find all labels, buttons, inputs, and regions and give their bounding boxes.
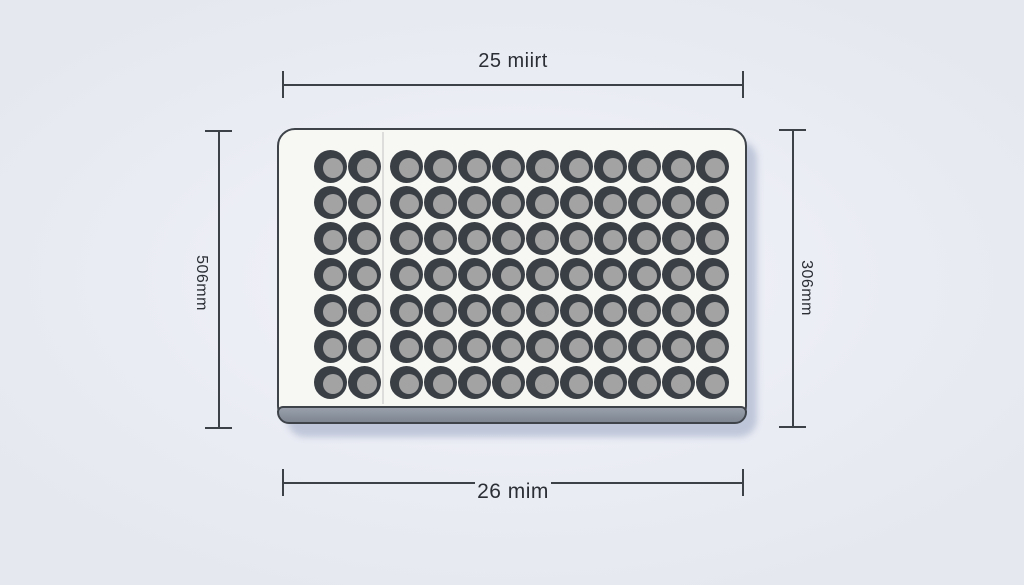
well-cavity — [467, 230, 487, 250]
well-cavity — [357, 374, 377, 394]
well — [492, 186, 525, 219]
well — [314, 366, 347, 399]
well-cavity — [357, 158, 377, 178]
well — [696, 258, 729, 291]
well-cavity — [603, 230, 623, 250]
well — [390, 258, 423, 291]
well — [526, 366, 559, 399]
well-cavity — [569, 230, 589, 250]
well-cavity — [569, 338, 589, 358]
well-cavity — [467, 302, 487, 322]
well — [594, 366, 627, 399]
well-cavity — [705, 302, 725, 322]
well-cavity — [671, 338, 691, 358]
well — [526, 330, 559, 363]
well-cavity — [569, 374, 589, 394]
well-cavity — [671, 194, 691, 214]
well-cavity — [705, 374, 725, 394]
well — [594, 294, 627, 327]
dimension-tick-left-top — [205, 130, 232, 132]
well-cavity — [357, 194, 377, 214]
well — [492, 330, 525, 363]
well-cavity — [705, 158, 725, 178]
well — [696, 186, 729, 219]
dimension-tick-left-bottom — [205, 427, 232, 429]
well-cavity — [705, 338, 725, 358]
well — [628, 186, 661, 219]
well-cavity — [467, 374, 487, 394]
well-cavity — [637, 194, 657, 214]
well-cavity — [603, 302, 623, 322]
well-cavity — [501, 374, 521, 394]
well — [662, 186, 695, 219]
well-cavity — [433, 338, 453, 358]
plate-side-face — [277, 406, 747, 424]
dimension-tick-right-bottom — [779, 426, 806, 428]
dimension-line-left — [218, 131, 220, 428]
well-row — [314, 330, 729, 363]
well-cavity — [323, 158, 343, 178]
well-cavity — [705, 230, 725, 250]
well-cavity — [569, 266, 589, 286]
well — [390, 366, 423, 399]
well — [696, 294, 729, 327]
well-cavity — [637, 266, 657, 286]
well — [492, 222, 525, 255]
diagram-canvas: 25 miirt 506mm 306mm 26 mim — [0, 0, 1024, 585]
well — [424, 258, 457, 291]
well — [526, 258, 559, 291]
well — [594, 330, 627, 363]
well-cavity — [467, 158, 487, 178]
well — [458, 222, 491, 255]
well — [314, 330, 347, 363]
well — [458, 258, 491, 291]
well — [560, 150, 593, 183]
well — [560, 186, 593, 219]
dimension-label-bottom: 26 mim — [283, 480, 743, 504]
well-cavity — [399, 338, 419, 358]
well — [662, 258, 695, 291]
well-cavity — [433, 158, 453, 178]
well-cavity — [501, 266, 521, 286]
well-cavity — [535, 158, 555, 178]
well — [628, 258, 661, 291]
well-cavity — [323, 374, 343, 394]
well-row — [314, 150, 729, 183]
well — [594, 222, 627, 255]
well — [348, 186, 381, 219]
well — [628, 366, 661, 399]
well-cavity — [323, 302, 343, 322]
dimension-label-left: 506mm — [191, 243, 211, 323]
well-cavity — [323, 230, 343, 250]
well-grid — [314, 150, 729, 399]
well — [348, 150, 381, 183]
well — [424, 366, 457, 399]
well-cavity — [501, 302, 521, 322]
well — [458, 366, 491, 399]
well — [526, 150, 559, 183]
well-cavity — [501, 158, 521, 178]
well — [662, 330, 695, 363]
well-cavity — [671, 266, 691, 286]
well-cavity — [467, 266, 487, 286]
well — [492, 294, 525, 327]
well — [662, 366, 695, 399]
well-cavity — [323, 194, 343, 214]
well-cavity — [433, 266, 453, 286]
well — [492, 258, 525, 291]
well-cavity — [323, 266, 343, 286]
well — [560, 258, 593, 291]
well-cavity — [603, 266, 623, 286]
well-cavity — [535, 302, 555, 322]
well — [492, 366, 525, 399]
well-cavity — [535, 374, 555, 394]
well — [348, 330, 381, 363]
well — [424, 222, 457, 255]
well-cavity — [569, 194, 589, 214]
well-cavity — [535, 266, 555, 286]
well-cavity — [399, 230, 419, 250]
well-cavity — [603, 374, 623, 394]
well-cavity — [637, 338, 657, 358]
well-cavity — [357, 266, 377, 286]
well — [696, 150, 729, 183]
well-cavity — [535, 194, 555, 214]
well — [314, 294, 347, 327]
well — [594, 186, 627, 219]
well — [696, 222, 729, 255]
well — [628, 294, 661, 327]
well-cavity — [399, 194, 419, 214]
well-cavity — [535, 338, 555, 358]
well-row — [314, 294, 729, 327]
well-cavity — [671, 302, 691, 322]
well-cavity — [399, 266, 419, 286]
well-cavity — [399, 302, 419, 322]
well — [526, 186, 559, 219]
well — [348, 294, 381, 327]
well-cavity — [433, 194, 453, 214]
well-cavity — [705, 194, 725, 214]
well-cavity — [569, 158, 589, 178]
well-cavity — [705, 266, 725, 286]
well — [526, 294, 559, 327]
well — [390, 186, 423, 219]
well — [458, 330, 491, 363]
well — [348, 366, 381, 399]
well-cavity — [603, 158, 623, 178]
well-cavity — [569, 302, 589, 322]
well-cavity — [357, 338, 377, 358]
well-cavity — [637, 230, 657, 250]
well-row — [314, 366, 729, 399]
well — [492, 150, 525, 183]
well-cavity — [357, 230, 377, 250]
dimension-line-top — [283, 84, 743, 86]
well-cavity — [399, 374, 419, 394]
well-cavity — [357, 302, 377, 322]
well — [594, 150, 627, 183]
well-cavity — [637, 374, 657, 394]
well — [628, 150, 661, 183]
well — [628, 222, 661, 255]
well-cavity — [399, 158, 419, 178]
well-cavity — [323, 338, 343, 358]
well-cavity — [603, 338, 623, 358]
well-cavity — [501, 194, 521, 214]
well — [458, 294, 491, 327]
well — [560, 366, 593, 399]
well-cavity — [671, 374, 691, 394]
well — [560, 294, 593, 327]
well-cavity — [467, 338, 487, 358]
dimension-line-right — [792, 130, 794, 427]
well-cavity — [501, 230, 521, 250]
well — [458, 186, 491, 219]
well — [424, 294, 457, 327]
well — [390, 294, 423, 327]
well — [594, 258, 627, 291]
well-cavity — [433, 302, 453, 322]
well-cavity — [671, 158, 691, 178]
well-cavity — [501, 338, 521, 358]
well — [314, 222, 347, 255]
well-row — [314, 222, 729, 255]
well-cavity — [433, 230, 453, 250]
well-cavity — [433, 374, 453, 394]
well — [560, 330, 593, 363]
well — [662, 150, 695, 183]
microplate — [277, 128, 747, 424]
well — [348, 258, 381, 291]
well — [458, 150, 491, 183]
well — [314, 150, 347, 183]
dimension-label-top: 25 miirt — [283, 50, 743, 73]
dimension-tick-top-left — [282, 71, 284, 98]
dimension-tick-right-top — [779, 129, 806, 131]
well-cavity — [637, 158, 657, 178]
well — [314, 186, 347, 219]
well-row — [314, 186, 729, 219]
well — [348, 222, 381, 255]
well-row — [314, 258, 729, 291]
well — [390, 330, 423, 363]
well — [560, 222, 593, 255]
dimension-tick-top-right — [742, 71, 744, 98]
well — [662, 222, 695, 255]
well — [628, 330, 661, 363]
well — [424, 330, 457, 363]
dimension-label-right: 306mm — [796, 248, 816, 328]
well — [424, 186, 457, 219]
well — [526, 222, 559, 255]
well-cavity — [467, 194, 487, 214]
well-cavity — [603, 194, 623, 214]
well-cavity — [671, 230, 691, 250]
well — [696, 330, 729, 363]
well-cavity — [637, 302, 657, 322]
well — [424, 150, 457, 183]
well — [696, 366, 729, 399]
well-cavity — [535, 230, 555, 250]
well — [662, 294, 695, 327]
well — [390, 150, 423, 183]
well — [390, 222, 423, 255]
well — [314, 258, 347, 291]
